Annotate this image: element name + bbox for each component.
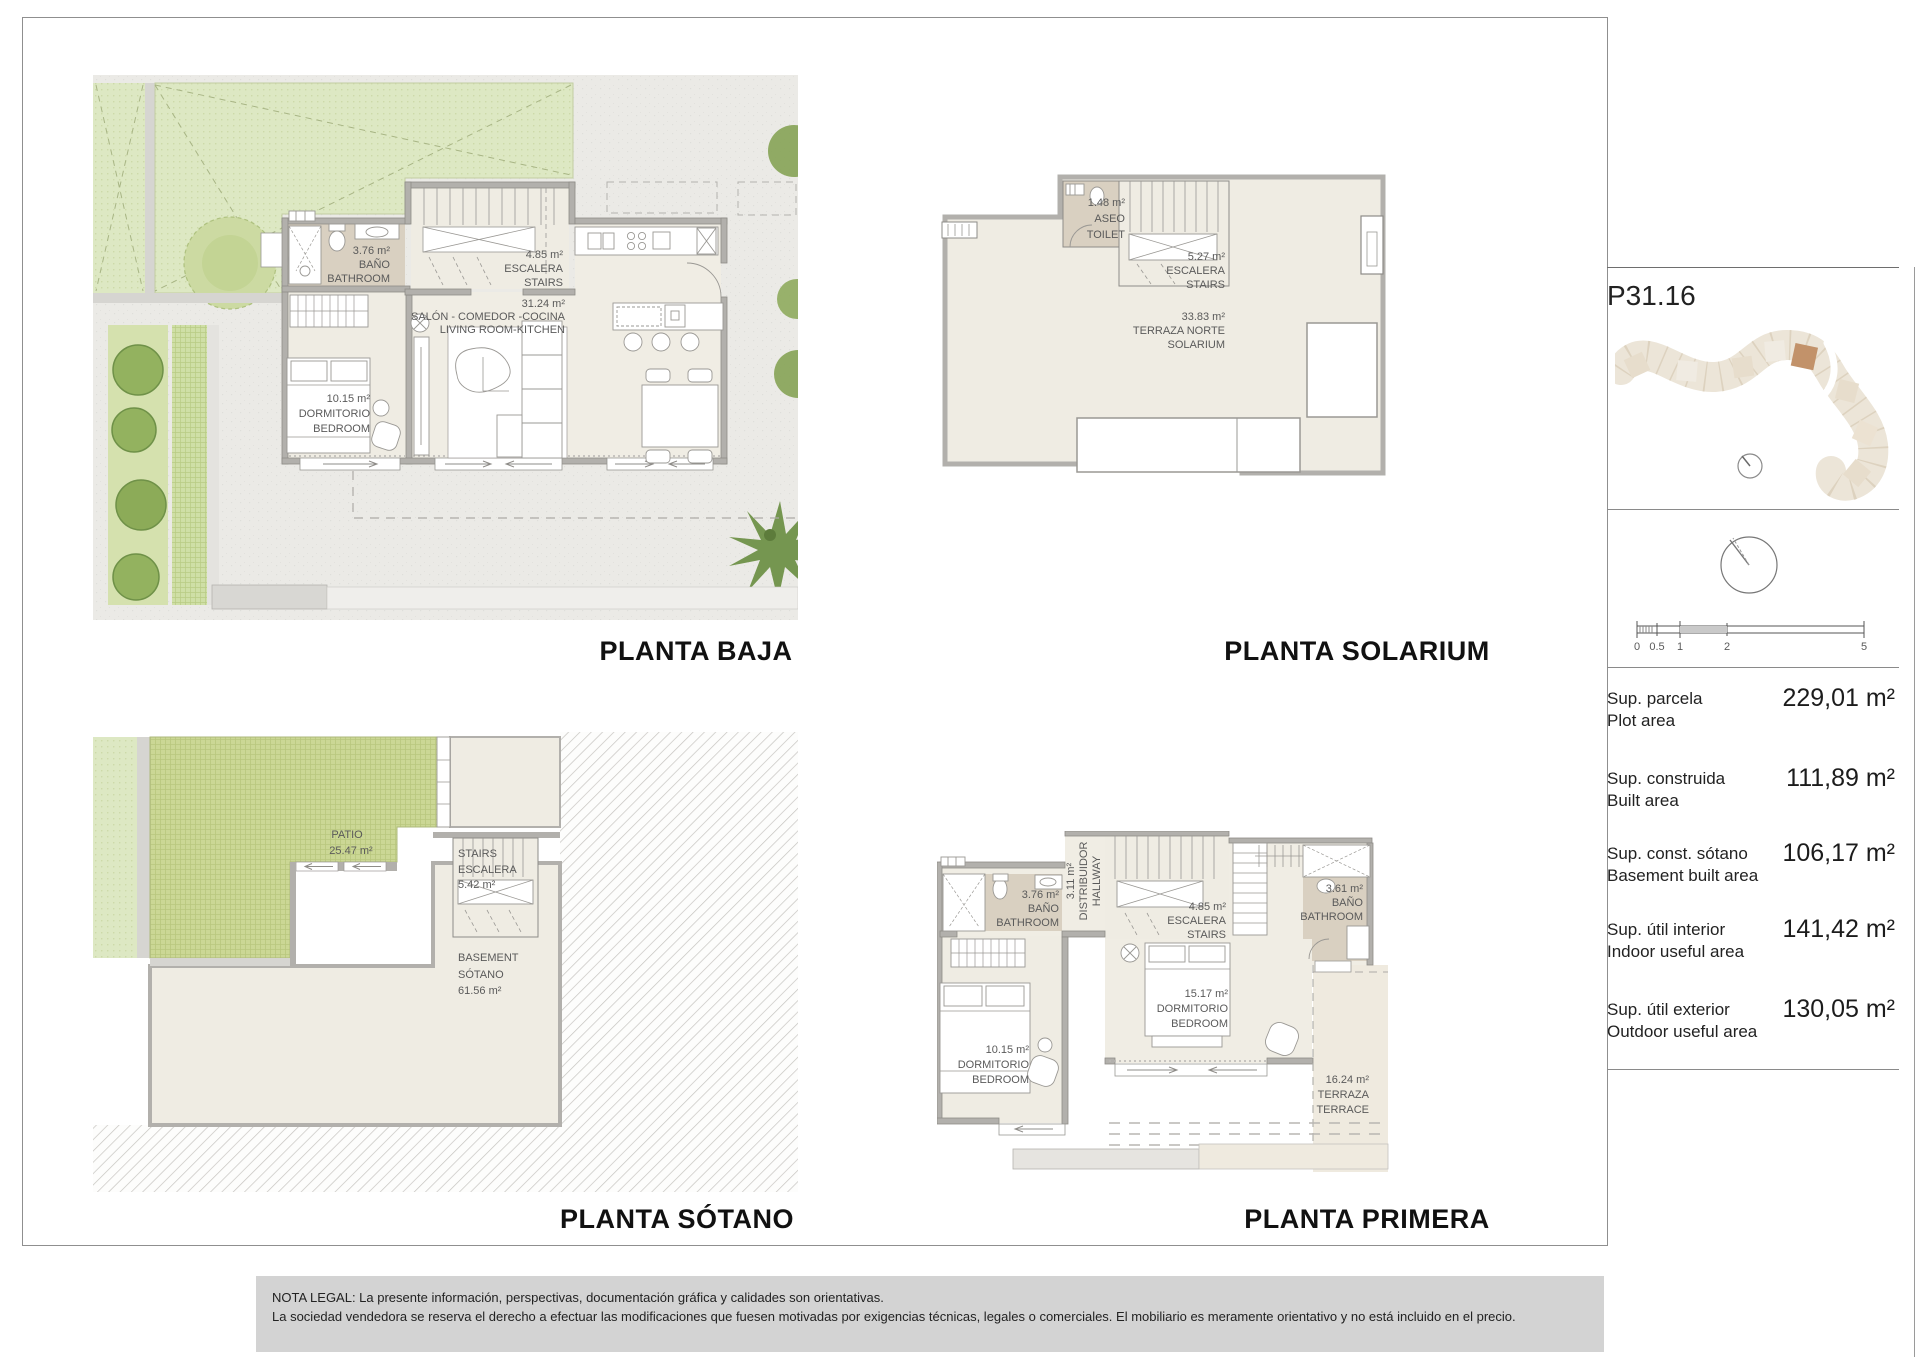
legal-line-1: NOTA LEGAL: La presente información, per… — [256, 1276, 1604, 1308]
svg-text:5.27 m²: 5.27 m² — [1188, 251, 1226, 263]
retaining-wall — [212, 585, 327, 609]
title-planta-primera: PLANTA PRIMERA — [1211, 1204, 1523, 1235]
title-planta-sotano: PLANTA SÓTANO — [521, 1204, 833, 1235]
svg-text:BEDROOM: BEDROOM — [1171, 1018, 1228, 1030]
svg-text:DORMITORIO: DORMITORIO — [1157, 1003, 1229, 1015]
area-row-indoor: Sup. útil interior Indoor useful area 14… — [1607, 919, 1899, 963]
svg-text:ASEO: ASEO — [1094, 213, 1125, 225]
svg-text:5: 5 — [1861, 641, 1867, 653]
lower-roof-west — [1013, 1149, 1199, 1169]
hedge-strip — [172, 325, 207, 605]
terrace-floor — [1313, 965, 1388, 1172]
svg-text:STAIRS: STAIRS — [1187, 929, 1226, 941]
svg-text:ESCALERA: ESCALERA — [458, 864, 517, 876]
svg-text:15.17 m²: 15.17 m² — [1185, 988, 1229, 1000]
svg-text:BATHROOM: BATHROOM — [996, 917, 1059, 929]
ac-unit — [942, 222, 977, 238]
sidebar-divider-3 — [1607, 1069, 1899, 1070]
slab-top-right — [450, 737, 560, 827]
path-strip — [137, 737, 150, 958]
area-value: 106,17 m² — [1782, 839, 1895, 868]
svg-text:STAIRS: STAIRS — [524, 277, 563, 289]
patio-west-wall — [290, 862, 296, 966]
tree-canopy-inner — [202, 235, 258, 291]
minimap-compass-icon — [1738, 454, 1762, 478]
svg-text:0: 0 — [1634, 641, 1640, 653]
svg-text:BAÑO: BAÑO — [1028, 902, 1060, 915]
svg-text:BAÑO: BAÑO — [1332, 896, 1364, 909]
svg-text:1.48 m²: 1.48 m² — [1088, 197, 1126, 209]
svg-text:TOILET: TOILET — [1087, 229, 1126, 241]
svg-text:10.15 m²: 10.15 m² — [327, 393, 371, 405]
svg-text:DORMITORIO: DORMITORIO — [299, 408, 371, 420]
area-value: 141,42 m² — [1782, 915, 1895, 944]
area-label-en: Built area — [1607, 790, 1899, 812]
sidebar-top-rule — [1607, 267, 1899, 268]
area-label-en: Basement built area — [1607, 865, 1899, 887]
svg-text:2: 2 — [1724, 641, 1730, 653]
svg-text:TERRACE: TERRACE — [1316, 1104, 1369, 1116]
void-opening — [1077, 418, 1300, 472]
svg-text:STAIRS: STAIRS — [1186, 279, 1225, 291]
lower-slab — [327, 587, 798, 609]
area-row-outdoor: Sup. útil exterior Outdoor useful area 1… — [1607, 999, 1899, 1043]
svg-text:BASEMENT: BASEMENT — [458, 952, 519, 964]
area-value: 130,05 m² — [1782, 995, 1895, 1024]
minimap-highlight-unit — [1791, 343, 1818, 370]
area-row-plot: Sup. parcela Plot area 229,01 m² — [1607, 688, 1899, 732]
earth-hatch-right — [560, 732, 798, 1192]
svg-text:4.85 m²: 4.85 m² — [526, 249, 564, 261]
svg-text:STAIRS: STAIRS — [458, 848, 497, 860]
garden-path — [145, 83, 155, 295]
svg-text:ESCALERA: ESCALERA — [1167, 915, 1226, 927]
svg-text:33.83 m²: 33.83 m² — [1182, 311, 1226, 323]
svg-text:SALÓN - COMEDOR -COCINA: SALÓN - COMEDOR -COCINA — [411, 310, 566, 323]
site-minimap — [1615, 315, 1915, 510]
area-value: 111,89 m² — [1786, 764, 1895, 793]
hedge-path — [207, 325, 219, 605]
earth-hatch-bottom — [93, 1125, 798, 1192]
garden-path-south — [93, 293, 283, 303]
void-opening-2 — [1307, 323, 1377, 417]
svg-text:TERRAZA NORTE: TERRAZA NORTE — [1133, 325, 1225, 337]
svg-text:BATHROOM: BATHROOM — [1300, 911, 1363, 923]
sidebar-divider-1 — [1607, 509, 1899, 510]
svg-text:PATIO: PATIO — [331, 829, 363, 841]
svg-text:3.11 m²: 3.11 m² — [1065, 862, 1077, 899]
solarium-ladder — [1233, 843, 1267, 935]
svg-text:25.47 m²: 25.47 m² — [329, 845, 373, 857]
wardrobe — [951, 939, 1025, 967]
legal-line-2: La sociedad vendedora se reserva el dere… — [256, 1308, 1604, 1327]
legal-note: NOTA LEGAL: La presente información, per… — [256, 1276, 1604, 1352]
kitchen-counter — [575, 227, 718, 255]
floorplan-planta-solarium: 1.48 m² ASEO TOILET 5.27 m² ESCALERA STA… — [937, 174, 1417, 489]
chimney-inner — [1367, 232, 1377, 266]
svg-text:ESCALERA: ESCALERA — [504, 263, 563, 275]
floorplan-planta-primera: 3.76 m² BAÑO BATHROOM 4.85 m² ESCALERA S… — [937, 831, 1452, 1201]
area-label-en: Indoor useful area — [1607, 941, 1899, 963]
svg-text:TERRAZA: TERRAZA — [1318, 1089, 1370, 1101]
svg-text:10.15 m²: 10.15 m² — [986, 1044, 1030, 1056]
svg-text:LIVING ROOM-KITCHEN: LIVING ROOM-KITCHEN — [440, 324, 565, 336]
svg-text:31.24 m²: 31.24 m² — [522, 298, 566, 310]
area-label-en: Plot area — [1607, 710, 1899, 732]
north-compass — [1715, 528, 1785, 600]
entrance-porch — [261, 233, 282, 267]
garden-sliver — [93, 737, 137, 958]
svg-text:3.76 m²: 3.76 m² — [353, 245, 391, 257]
svg-text:BATHROOM: BATHROOM — [327, 273, 390, 285]
svg-text:3.61 m²: 3.61 m² — [1326, 883, 1364, 895]
garden-strip-left — [93, 83, 145, 295]
svg-text:DISTRIBUIDOR: DISTRIBUIDOR — [1078, 842, 1090, 921]
svg-text:BEDROOM: BEDROOM — [313, 423, 370, 435]
scale-numbers: 0 0.5 1 2 5 — [1634, 641, 1867, 653]
basement-top-wall — [433, 832, 560, 838]
unit-code: P31.16 — [1607, 280, 1696, 312]
bed1-slider — [999, 1124, 1065, 1135]
floorplan-planta-baja: 3.76 m² BAÑO BATHROOM 4.85 m² ESCALERA S… — [93, 75, 798, 620]
svg-text:3.76 m²: 3.76 m² — [1022, 889, 1060, 901]
svg-text:61.56 m²: 61.56 m² — [458, 985, 502, 997]
svg-text:BAÑO: BAÑO — [359, 258, 391, 271]
patio-path — [150, 958, 290, 966]
svg-text:4.85 m²: 4.85 m² — [1189, 901, 1227, 913]
svg-text:5.42 m²: 5.42 m² — [458, 879, 496, 891]
area-label-en: Outdoor useful area — [1607, 1021, 1899, 1043]
scale-fill-segment — [1680, 626, 1727, 633]
svg-text:1: 1 — [1677, 641, 1683, 653]
area-value: 229,01 m² — [1782, 684, 1895, 713]
scale-bar: 0 0.5 1 2 5 — [1630, 612, 1880, 656]
svg-text:SÓTANO: SÓTANO — [458, 968, 504, 981]
svg-text:16.24 m²: 16.24 m² — [1326, 1074, 1370, 1086]
svg-text:SOLARIUM: SOLARIUM — [1168, 339, 1225, 351]
area-row-basement: Sup. const. sótano Basement built area 1… — [1607, 843, 1899, 887]
sidebar-divider-2 — [1607, 667, 1899, 668]
title-planta-solarium: PLANTA SOLARIUM — [1201, 636, 1513, 667]
svg-text:0.5: 0.5 — [1649, 641, 1664, 653]
title-planta-baja: PLANTA BAJA — [540, 636, 852, 667]
svg-text:ESCALERA: ESCALERA — [1166, 265, 1225, 277]
area-row-built: Sup. construida Built area 111,89 m² — [1607, 768, 1899, 812]
svg-text:BEDROOM: BEDROOM — [972, 1074, 1029, 1086]
basement-floor-west — [150, 966, 433, 1125]
bed2-slider — [1109, 1061, 1267, 1076]
floorplan-planta-sotano: PATIO 25.47 m² STAIRS ESCALERA 5.42 m² B… — [93, 732, 798, 1192]
svg-text:DORMITORIO: DORMITORIO — [958, 1059, 1030, 1071]
lower-roof-east — [1199, 1144, 1388, 1169]
svg-text:HALLWAY: HALLWAY — [1091, 855, 1103, 906]
